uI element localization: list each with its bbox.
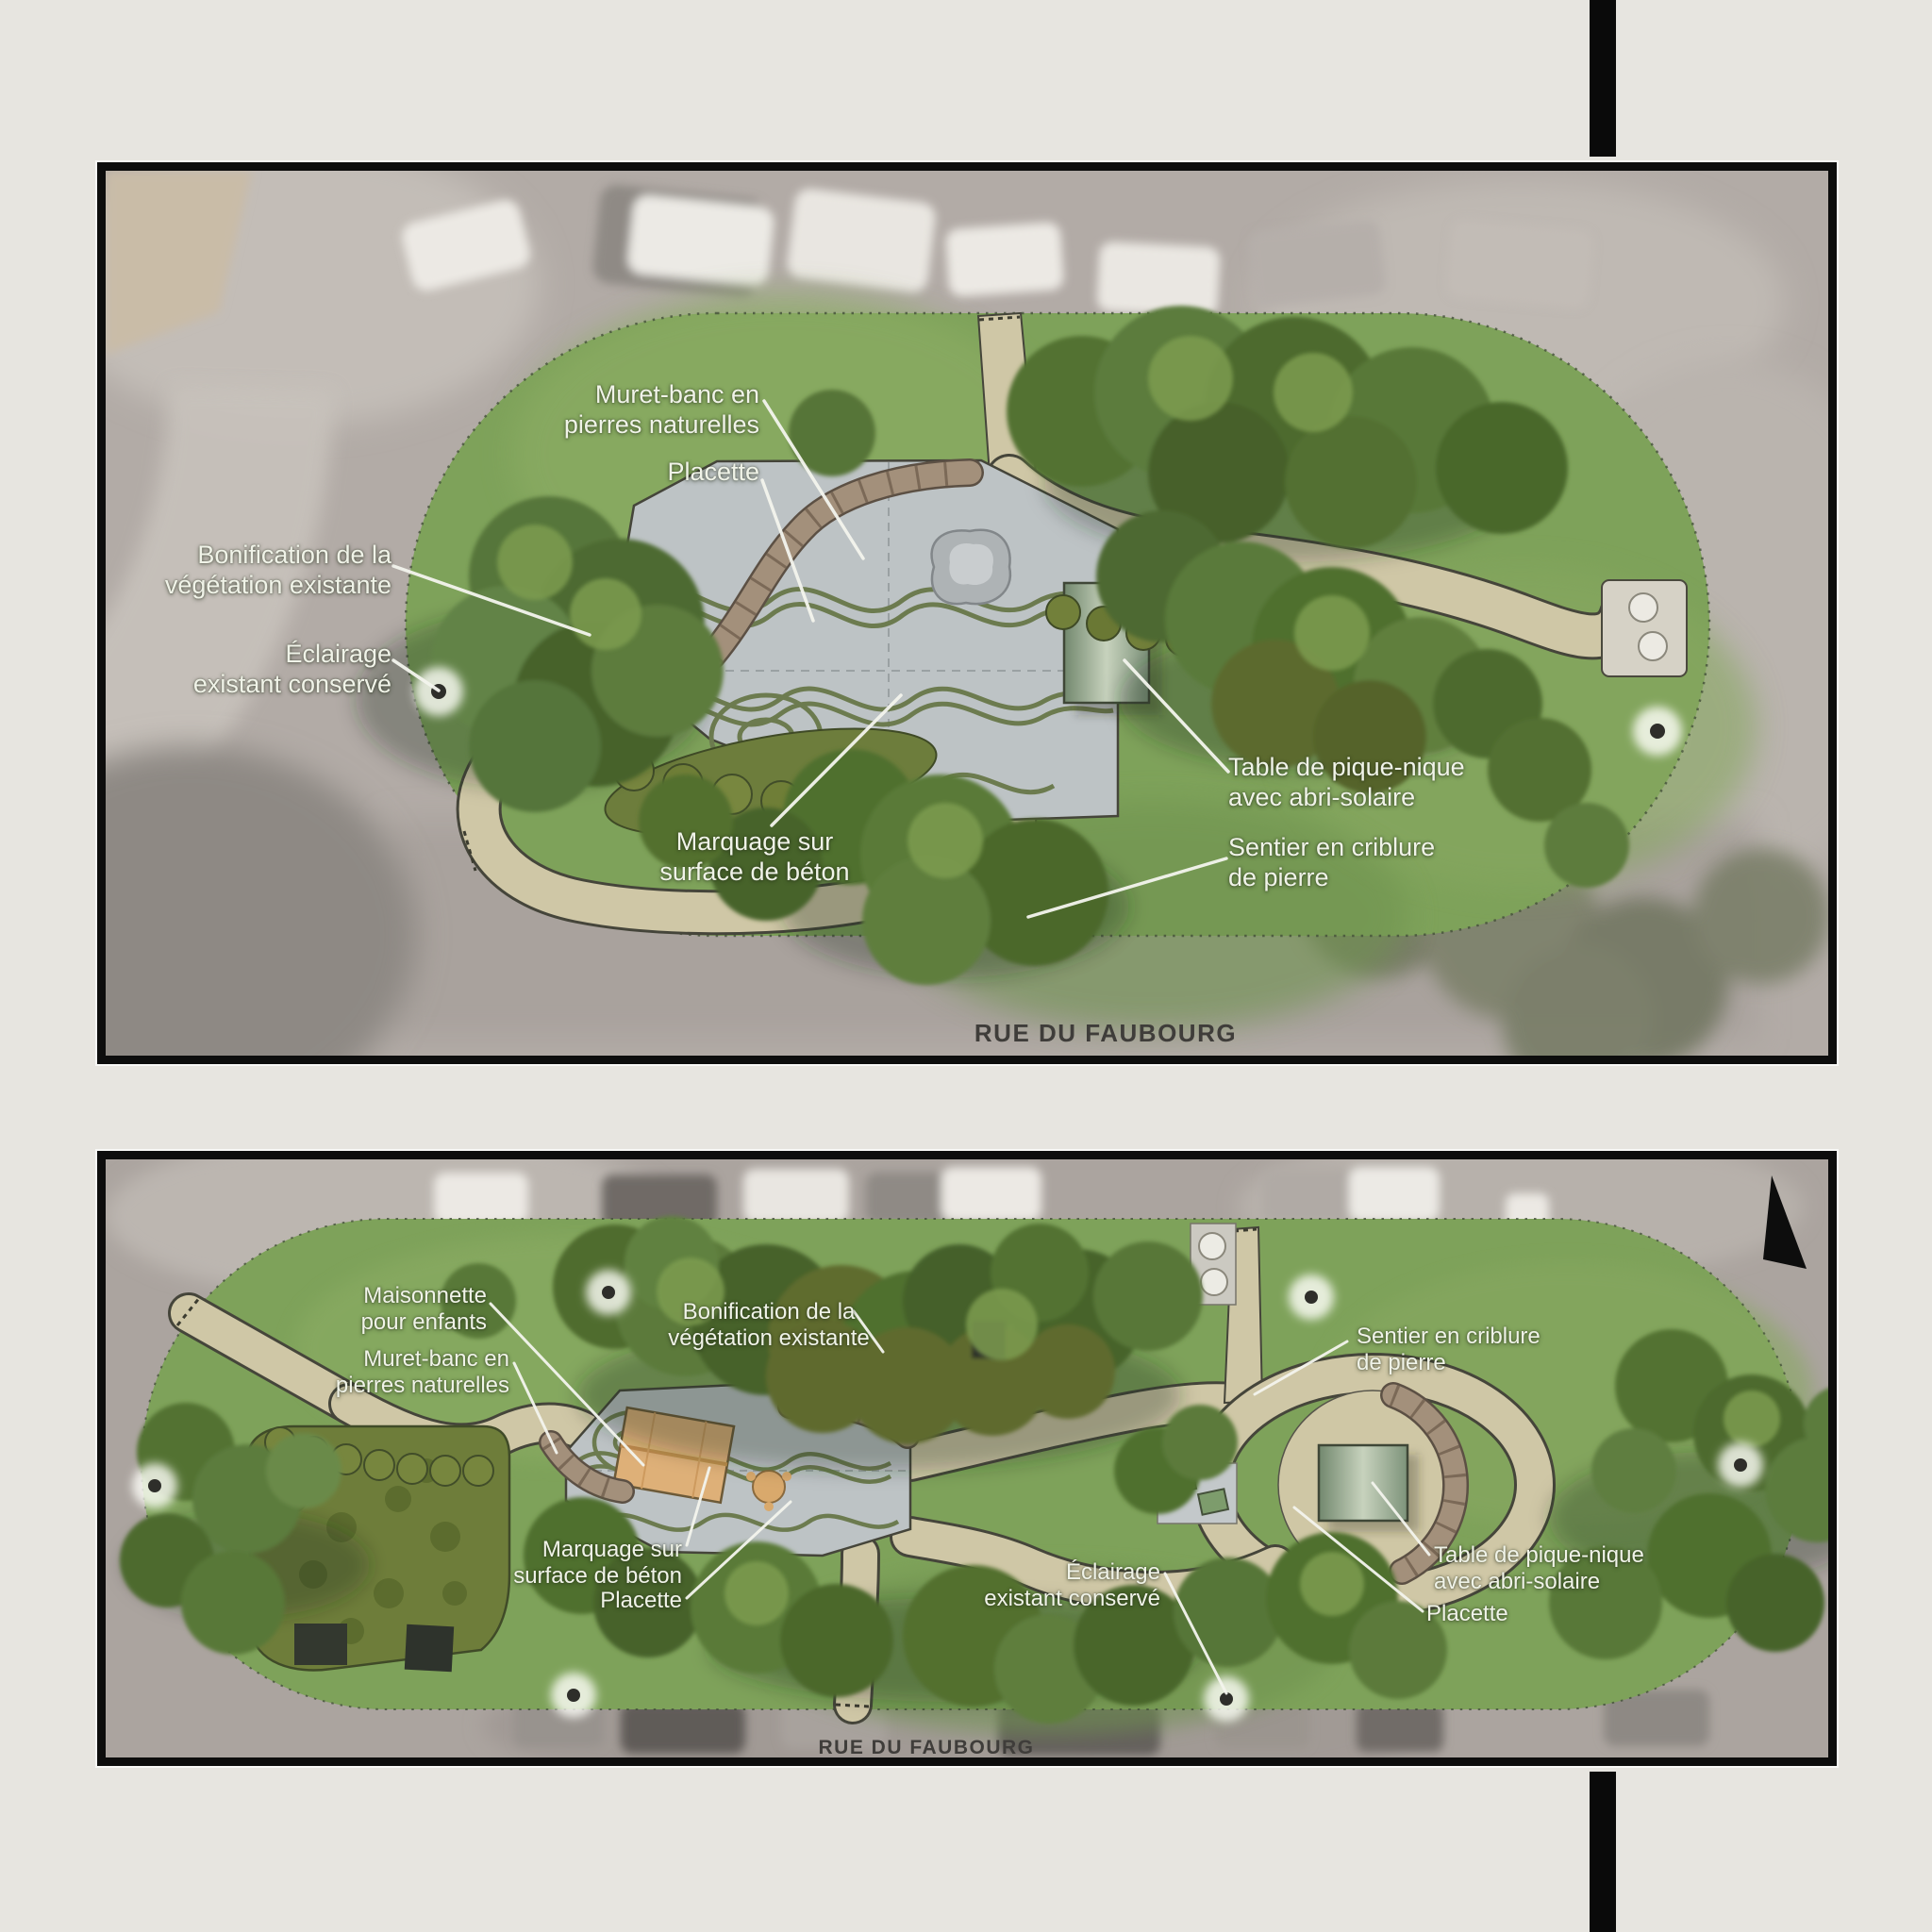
annotation-eclairage: Éclairage existant conservé — [915, 1559, 1160, 1613]
annotation-placette: Placette — [514, 458, 759, 488]
plan-panel-2: Maisonnette pour enfants Muret-banc en p… — [97, 1151, 1837, 1766]
annotation-line: Éclairage — [143, 640, 391, 670]
plan-panel-1: Bonification de la végétation existante … — [97, 162, 1837, 1064]
annotation-line: de pierre — [1228, 863, 1511, 893]
annotation-line: Éclairage — [915, 1559, 1160, 1586]
annotation-table-pique-nique: Table de pique-nique avec abri-solaire — [1228, 753, 1511, 813]
annotation-line: Muret-banc en — [514, 380, 759, 410]
annotation-line: Sentier en criblure — [1228, 833, 1511, 863]
building-roof — [294, 1624, 347, 1665]
annotation-line: Bonification de la — [662, 1299, 875, 1325]
annotation-maisonnette: Maisonnette pour enfants — [241, 1283, 487, 1337]
annotation-line: Sentier en criblure — [1357, 1324, 1602, 1350]
annotation-line: Placette — [514, 458, 759, 488]
aerial-plan-rendering-2 — [106, 1159, 1828, 1757]
annotation-line: avec abri-solaire — [1228, 783, 1511, 813]
annotation-line: Placette — [1426, 1601, 1615, 1627]
annotation-sentier: Sentier en criblure de pierre — [1357, 1324, 1602, 1377]
slide-divider-bar-bottom — [1590, 1772, 1616, 1932]
street-label: RUE DU FAUBOURG — [766, 1737, 1087, 1759]
annotation-marquage: Marquage sur surface de béton — [437, 1537, 682, 1591]
annotation-line: Bonification de la — [143, 541, 391, 571]
slide-divider-bar-top — [1590, 0, 1616, 157]
annotation-bonification: Bonification de la végétation existante — [143, 541, 391, 601]
annotation-line: Marquage sur — [437, 1537, 682, 1563]
annotation-marquage: Marquage sur surface de béton — [641, 827, 868, 888]
street-label: RUE DU FAUBOURG — [955, 1019, 1257, 1048]
annotation-eclairage: Éclairage existant conservé — [143, 640, 391, 700]
annotation-line: existant conservé — [915, 1586, 1160, 1612]
annotation-line: de pierre — [1357, 1350, 1602, 1376]
annotation-line: Table de pique-nique — [1228, 753, 1511, 783]
annotation-placette-west: Placette — [437, 1588, 682, 1614]
building-roof — [405, 1624, 454, 1673]
annotation-line: végétation existante — [143, 571, 391, 601]
annotation-line: pour enfants — [241, 1309, 487, 1336]
boulder — [932, 530, 1010, 604]
annotation-line: Maisonnette — [241, 1283, 487, 1309]
annotation-line: surface de béton — [641, 858, 868, 888]
aerial-plan-rendering-1 — [106, 171, 1828, 1056]
annotation-bonification: Bonification de la végétation existante — [662, 1299, 875, 1353]
annotation-placette-east: Placette — [1426, 1601, 1615, 1627]
annotation-line: pierres naturelles — [264, 1373, 509, 1399]
annotation-line: Placette — [437, 1588, 682, 1614]
annotation-table-pique-nique: Table de pique-nique avec abri-solaire — [1434, 1542, 1698, 1596]
annotation-line: végétation existante — [662, 1325, 875, 1352]
annotation-line: avec abri-solaire — [1434, 1569, 1698, 1595]
annotation-sentier: Sentier en criblure de pierre — [1228, 833, 1511, 893]
annotation-line: pierres naturelles — [514, 410, 759, 441]
annotation-muret-banc: Muret-banc en pierres naturelles — [264, 1346, 509, 1400]
picnic-shelter — [1319, 1445, 1419, 1532]
annotation-line: existant conservé — [143, 670, 391, 700]
annotation-line: Marquage sur — [641, 827, 868, 858]
annotation-line: Table de pique-nique — [1434, 1542, 1698, 1569]
annotation-muret-banc: Muret-banc en pierres naturelles — [514, 380, 759, 441]
annotation-line: Muret-banc en — [264, 1346, 509, 1373]
annotation-line: surface de béton — [437, 1563, 682, 1590]
